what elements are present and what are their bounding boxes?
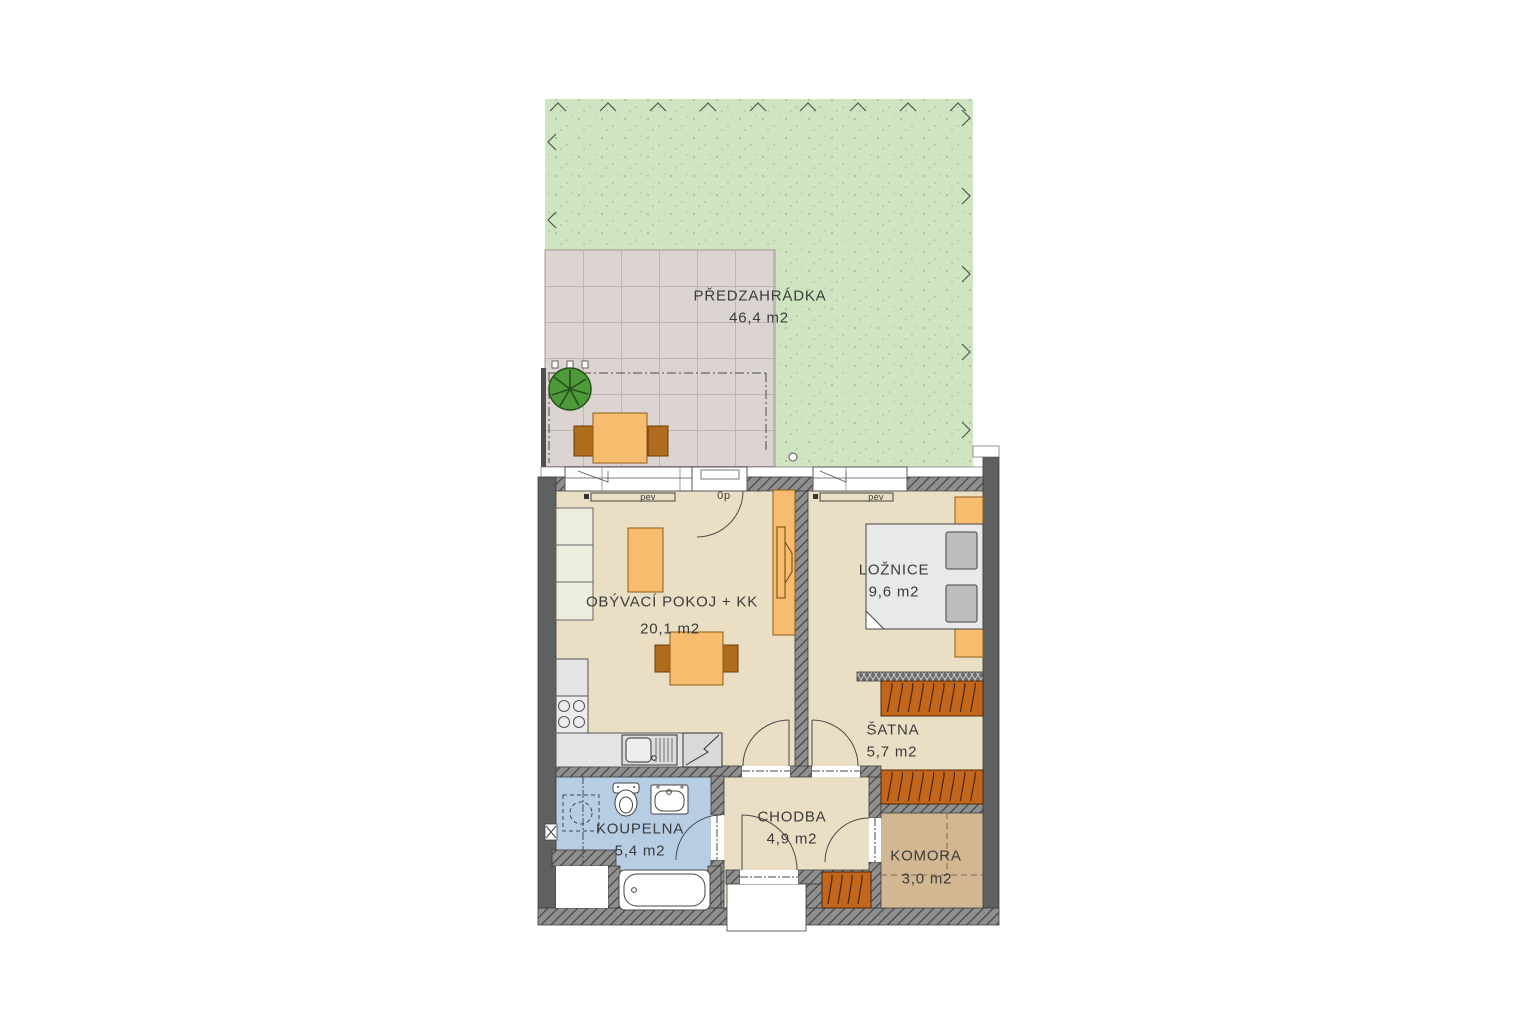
terrace-side-wall <box>541 368 546 467</box>
garden-door <box>692 467 747 491</box>
fence-post <box>567 361 573 368</box>
wall-bath-hall-upper <box>711 776 724 815</box>
wall-bedroom-closet <box>857 672 983 681</box>
wall-closet-storage <box>881 804 983 813</box>
wall-living-bathroom <box>556 766 742 777</box>
toilet-icon <box>613 783 639 816</box>
wall-right-notch <box>973 446 999 457</box>
garden-area: 46,4 m2 <box>729 310 789 327</box>
tv-cabinet <box>773 490 795 635</box>
garden-marker-dot <box>789 453 797 461</box>
wall-left <box>538 477 556 908</box>
wall-top-segment <box>747 477 813 491</box>
wall-entry-side <box>806 884 822 908</box>
bathroom-sink-icon <box>651 785 688 814</box>
bathroom-label: KOUPELNA <box>596 821 684 838</box>
stove-icon <box>556 696 588 733</box>
entrance-recess <box>727 884 806 931</box>
radiator-bedroom-label: pev <box>868 492 883 502</box>
fence-post <box>552 361 558 368</box>
closet-label: ŠATNA <box>867 722 920 739</box>
radiator-living-label: pev <box>640 492 655 502</box>
bathroom-area: 5,4 m2 <box>615 843 666 860</box>
wall-hall-closet <box>860 766 881 777</box>
garden-label: PŘEDZAHRÁDKA <box>694 288 827 305</box>
floor-plan: PŘEDZAHRÁDKA 46,4 m2 OBÝVACÍ POKOJ + KK … <box>0 0 1536 1024</box>
bedroom-area: 9,6 m2 <box>869 584 920 601</box>
wall-living-bedroom <box>795 491 808 776</box>
wall-tub-left <box>608 866 620 908</box>
living-room-label: OBÝVACÍ POKOJ + KK <box>586 594 758 611</box>
bathtub-icon <box>619 870 710 910</box>
terrace-chair <box>574 426 594 456</box>
sofa <box>628 528 663 592</box>
storage-label: KOMORA <box>890 848 961 865</box>
hallway-area: 4,9 m2 <box>767 831 818 848</box>
hall-wardrobe <box>822 872 871 908</box>
fridge-icon <box>683 733 722 767</box>
nightstand <box>955 629 983 657</box>
storage-area: 3,0 m2 <box>902 871 953 888</box>
valve-icon <box>545 824 557 840</box>
garden-bush-icon <box>549 368 591 410</box>
terrace-chair <box>648 426 668 456</box>
kitchen-cabinet <box>556 659 588 696</box>
kitchen-sink-icon <box>622 735 677 765</box>
garden-door-label: 0p <box>717 490 731 502</box>
wall-top-segment <box>907 477 983 491</box>
wall-hall-storage-upper <box>869 777 881 818</box>
nightstand <box>955 497 983 524</box>
living-room-area: 20,1 m2 <box>640 621 700 638</box>
wall-bathroom-niche <box>552 850 616 866</box>
wall-entry-left <box>726 870 740 884</box>
bedroom-label: LOŽNICE <box>859 562 930 579</box>
wall-top-segment <box>556 477 565 491</box>
fence-post <box>582 361 588 368</box>
hallway-label: CHODBA <box>758 809 827 826</box>
wall-right <box>983 457 999 908</box>
terrace-table <box>593 413 647 463</box>
closet-area: 5,7 m2 <box>867 744 918 761</box>
wall-hall-stub <box>790 766 812 777</box>
dining-table <box>670 632 723 685</box>
living-room-window <box>565 467 692 491</box>
bedroom-window <box>813 467 907 491</box>
shaft-niche <box>556 866 608 908</box>
